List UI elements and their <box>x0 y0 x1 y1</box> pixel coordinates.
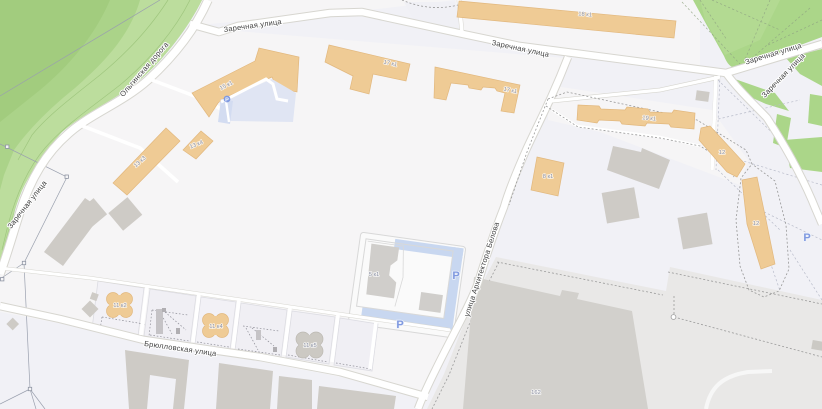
svg-text:11 к2: 11 к2 <box>113 303 126 309</box>
svg-text:18 к1: 18 к1 <box>578 11 592 18</box>
svg-text:162: 162 <box>531 390 541 396</box>
svg-text:5 к1: 5 к1 <box>369 272 380 278</box>
svg-text:12: 12 <box>753 221 759 227</box>
svg-text:11 к5: 11 к5 <box>303 343 316 349</box>
svg-text:P: P <box>803 232 810 244</box>
svg-text:11 к4: 11 к4 <box>209 324 223 330</box>
svg-text:P: P <box>225 98 229 104</box>
svg-text:12: 12 <box>719 150 725 156</box>
svg-text:P: P <box>396 319 403 331</box>
svg-text:P: P <box>452 270 459 282</box>
svg-text:8 к1: 8 к1 <box>543 174 554 180</box>
